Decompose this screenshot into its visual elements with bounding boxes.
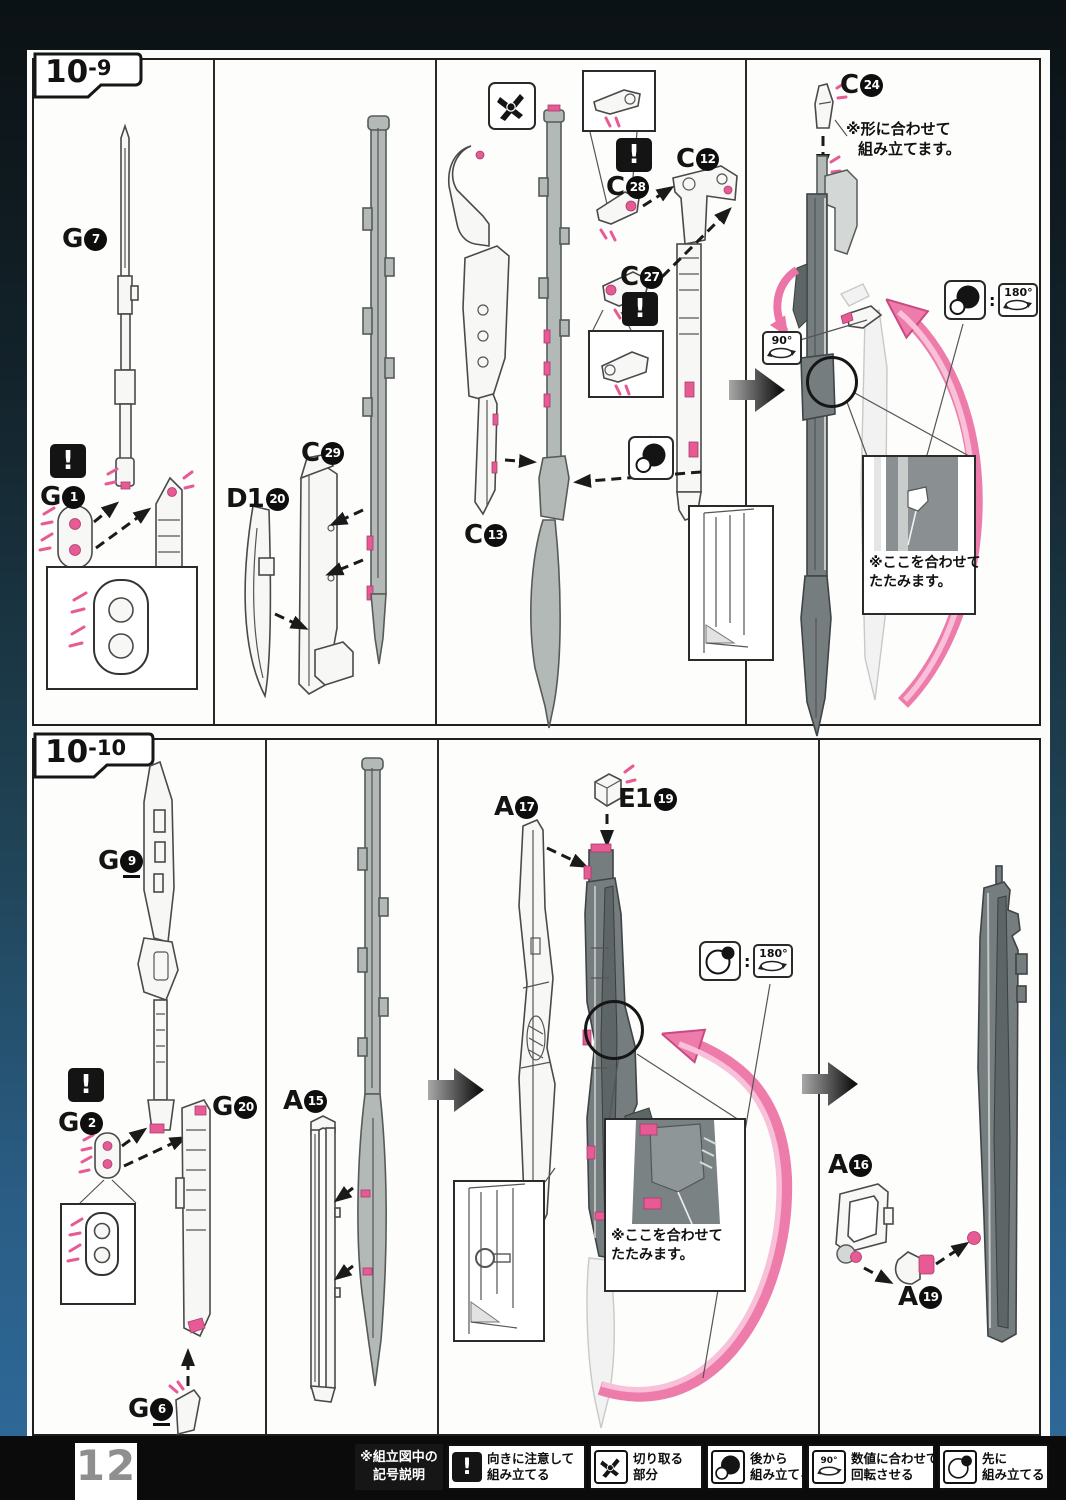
part-label-c24: C24 bbox=[840, 70, 883, 100]
cut-part-icon bbox=[594, 1450, 628, 1484]
legend-title-line1: ※組立図中の bbox=[360, 1449, 438, 1467]
inset-pin-drawing bbox=[455, 1182, 543, 1340]
rotate-180-icon: 180° bbox=[753, 944, 793, 978]
legend-item-rotate: 90° 数値に合わせて回転させる bbox=[807, 1444, 935, 1490]
note-fit-shape-line2: 組み立てます。 bbox=[858, 140, 961, 160]
part-number: 24 bbox=[860, 74, 883, 97]
rotate-ellipse-glyph bbox=[1003, 299, 1031, 312]
part-label-a17: A17 bbox=[494, 792, 538, 822]
step-number-sub: -9 bbox=[88, 56, 111, 80]
part-number: 7 bbox=[84, 228, 107, 251]
warning-glyph: ! bbox=[634, 294, 646, 324]
legend-item-assemble-later: 後から組み立てる bbox=[706, 1444, 804, 1490]
part-label-g20: G20 bbox=[212, 1092, 257, 1122]
detail-inset-connector bbox=[60, 1203, 136, 1305]
part-number: 2 bbox=[80, 1112, 103, 1135]
step-number-sub: -10 bbox=[88, 736, 126, 760]
step-number-text: 10-10 bbox=[45, 734, 126, 770]
part-number: 29 bbox=[321, 442, 344, 465]
detail-inset-c27 bbox=[588, 330, 664, 398]
warning-glyph: ! bbox=[80, 1070, 92, 1100]
colon-separator: : bbox=[989, 291, 995, 310]
assemble-later-glyph bbox=[634, 442, 668, 474]
legend-item-assemble-first: 先に組み立てる bbox=[938, 1444, 1049, 1490]
circle-callout bbox=[806, 356, 858, 408]
legend-title-line2: 記号説明 bbox=[373, 1467, 425, 1485]
part-letter: A bbox=[828, 1150, 847, 1180]
panel-divider bbox=[435, 60, 437, 724]
part-letter: G bbox=[98, 846, 118, 876]
legend-text-line1: 数値に合わせて bbox=[851, 1451, 939, 1467]
part-number: 15 bbox=[304, 1090, 327, 1113]
part-label-g9: G9 bbox=[98, 846, 143, 876]
part-letter: G bbox=[58, 1108, 78, 1138]
step-number-main: 10 bbox=[45, 54, 88, 90]
part-letter: E1 bbox=[618, 784, 652, 814]
part-label-a16: A16 bbox=[828, 1150, 872, 1180]
rotate-ellipse-glyph bbox=[767, 347, 795, 360]
part-label-g6: G6 bbox=[128, 1394, 173, 1424]
rotate-ellipse-glyph bbox=[758, 960, 786, 973]
warning-glyph: ! bbox=[462, 1455, 472, 1480]
legend-text-line1: 後から bbox=[750, 1451, 813, 1467]
part-label-c29: C29 bbox=[301, 438, 344, 468]
part-letter: C bbox=[840, 70, 858, 100]
assemble-first-icon bbox=[699, 941, 741, 981]
detail-inset-pin bbox=[453, 1180, 545, 1342]
assemble-later-icon bbox=[711, 1450, 745, 1484]
panel-divider bbox=[818, 740, 820, 1434]
circle-callout bbox=[584, 1000, 644, 1060]
part-number: 16 bbox=[849, 1154, 872, 1177]
instruction-manual-page: 10-9 G7 ! G1 G27 D120 C29 bbox=[0, 0, 1066, 1500]
part-letter: C bbox=[606, 172, 624, 202]
part-letter: G bbox=[40, 482, 60, 512]
warning-icon: ! bbox=[68, 1068, 104, 1102]
assemble-first-glyph bbox=[703, 945, 737, 977]
part-label-d1-20: D120 bbox=[226, 484, 289, 514]
part-number: 13 bbox=[484, 524, 507, 547]
part-number: 1 bbox=[62, 486, 85, 509]
note-fit-shape-line1: ※形に合わせて bbox=[846, 120, 951, 140]
rotate-180-icon: 180° bbox=[998, 283, 1038, 317]
part-label-a15: A15 bbox=[283, 1086, 327, 1116]
warning-glyph: ! bbox=[628, 140, 640, 170]
part-number: 27 bbox=[640, 266, 663, 289]
warning-icon: ! bbox=[622, 292, 658, 326]
part-label-g2: G2 bbox=[58, 1108, 103, 1138]
detail-inset-c28 bbox=[582, 70, 656, 132]
part-label-g7: G7 bbox=[62, 224, 107, 254]
rotate-degree-label: 90° bbox=[767, 334, 797, 347]
warning-icon: ! bbox=[616, 138, 652, 172]
note-fold-align-line1: ※ここを合わせて bbox=[606, 1224, 744, 1246]
step-number-label-10-9: 10-9 bbox=[33, 52, 145, 100]
part-letter: D1 bbox=[226, 484, 264, 514]
detail-inset-blade bbox=[688, 505, 774, 661]
detail-inset-connector bbox=[46, 566, 198, 690]
warning-glyph: ! bbox=[62, 446, 74, 476]
legend-text-line1: 切り取る bbox=[633, 1451, 683, 1467]
inset-c27-drawing bbox=[590, 332, 662, 396]
step-number-main: 10 bbox=[45, 734, 88, 770]
part-letter: G bbox=[212, 1092, 232, 1122]
part-label-g1: G1 bbox=[40, 482, 85, 512]
part-label-a19: A19 bbox=[898, 1282, 942, 1312]
part-label-c28: C28 bbox=[606, 172, 649, 202]
legend-text-line1: 先に bbox=[982, 1451, 1045, 1467]
part-number: 20 bbox=[266, 488, 289, 511]
step-number-label-10-10: 10-10 bbox=[33, 732, 157, 780]
colon-separator: : bbox=[744, 952, 750, 971]
page-number-text: 12 bbox=[76, 1443, 136, 1500]
legend-text-line1: 向きに注意して bbox=[487, 1451, 574, 1467]
rotate-degree-label: 180° bbox=[1003, 286, 1033, 299]
inset-fold-drawing bbox=[606, 1120, 744, 1224]
inset-blade-drawing bbox=[690, 507, 772, 659]
legend-title: ※組立図中の 記号説明 bbox=[355, 1444, 443, 1490]
part-letter: C bbox=[676, 144, 694, 174]
part-number: 28 bbox=[626, 176, 649, 199]
part-letter: G bbox=[62, 224, 82, 254]
inset-fold-drawing bbox=[864, 457, 974, 551]
panel-divider bbox=[213, 60, 215, 724]
part-letter: C bbox=[301, 438, 319, 468]
rotate-180-instruction: : 180° bbox=[944, 280, 1038, 320]
rotate-degree-label: 90° bbox=[820, 1457, 837, 1466]
part-label-c13: C13 bbox=[464, 520, 507, 550]
warning-icon: ! bbox=[50, 444, 86, 478]
part-label-c27: C27 bbox=[620, 262, 663, 292]
detail-inset-fold-align: ※ここを合わせて たたみます。 bbox=[862, 455, 976, 615]
assemble-later-icon bbox=[944, 280, 986, 320]
inset-connector-drawing bbox=[62, 1205, 134, 1303]
panel-divider bbox=[265, 740, 267, 1434]
rotate-icon: 90° bbox=[812, 1450, 846, 1484]
part-label-c12: C12 bbox=[676, 144, 719, 174]
part-number: 19 bbox=[654, 788, 677, 811]
part-number: 17 bbox=[515, 796, 538, 819]
cut-part-icon bbox=[488, 82, 536, 130]
part-letter: C bbox=[464, 520, 482, 550]
assemble-first-glyph bbox=[946, 1454, 974, 1481]
part-number: 12 bbox=[696, 148, 719, 171]
legend-item-cut: 切り取る部分 bbox=[589, 1444, 703, 1490]
assemble-later-glyph bbox=[948, 284, 982, 316]
note-fold-align-line1: ※ここを合わせて bbox=[864, 551, 974, 573]
rotate-180-instruction: : 180° bbox=[699, 941, 793, 981]
part-letter: G bbox=[128, 1394, 148, 1424]
legend-text-line2: 部分 bbox=[633, 1467, 683, 1483]
nippers-glyph bbox=[494, 88, 530, 124]
legend-text-line2: 回転させる bbox=[851, 1467, 939, 1483]
part-letter: C bbox=[620, 262, 638, 292]
panel-divider bbox=[437, 740, 439, 1434]
inset-c28-drawing bbox=[584, 72, 654, 130]
rotate-degree-label: 180° bbox=[758, 947, 788, 960]
part-letter: A bbox=[898, 1282, 917, 1312]
part-number: 20 bbox=[234, 1096, 257, 1119]
detail-inset-fold-align: ※ここを合わせて たたみます。 bbox=[604, 1118, 746, 1292]
inset-connector-drawing bbox=[48, 568, 196, 688]
note-fold-align-line2: たたみます。 bbox=[606, 1246, 744, 1265]
assemble-first-icon bbox=[943, 1450, 977, 1484]
assemble-later-glyph bbox=[714, 1454, 742, 1481]
assemble-later-icon bbox=[628, 436, 674, 480]
legend-item-warning: ! 向きに注意して組み立てる bbox=[447, 1444, 586, 1490]
warning-icon: ! bbox=[452, 1452, 482, 1482]
part-number: 19 bbox=[919, 1286, 942, 1309]
step-number-text: 10-9 bbox=[45, 54, 111, 90]
legend-text-line2: 組み立てる bbox=[487, 1467, 574, 1483]
nippers-glyph bbox=[598, 1454, 624, 1480]
page-number: 12 bbox=[75, 1443, 137, 1500]
legend-text-line2: 組み立てる bbox=[982, 1467, 1045, 1483]
rotate-ellipse-glyph bbox=[817, 1466, 841, 1477]
part-letter: A bbox=[283, 1086, 302, 1116]
legend-text-line2: 組み立てる bbox=[750, 1467, 813, 1483]
part-label-e1-19: E119 bbox=[618, 784, 677, 814]
part-number: 9 bbox=[120, 850, 143, 873]
rotate-90-icon: 90° bbox=[762, 331, 802, 365]
note-fold-align-line2: たたみます。 bbox=[864, 573, 974, 592]
part-number: 6 bbox=[150, 1398, 173, 1421]
part-letter: A bbox=[494, 792, 513, 822]
